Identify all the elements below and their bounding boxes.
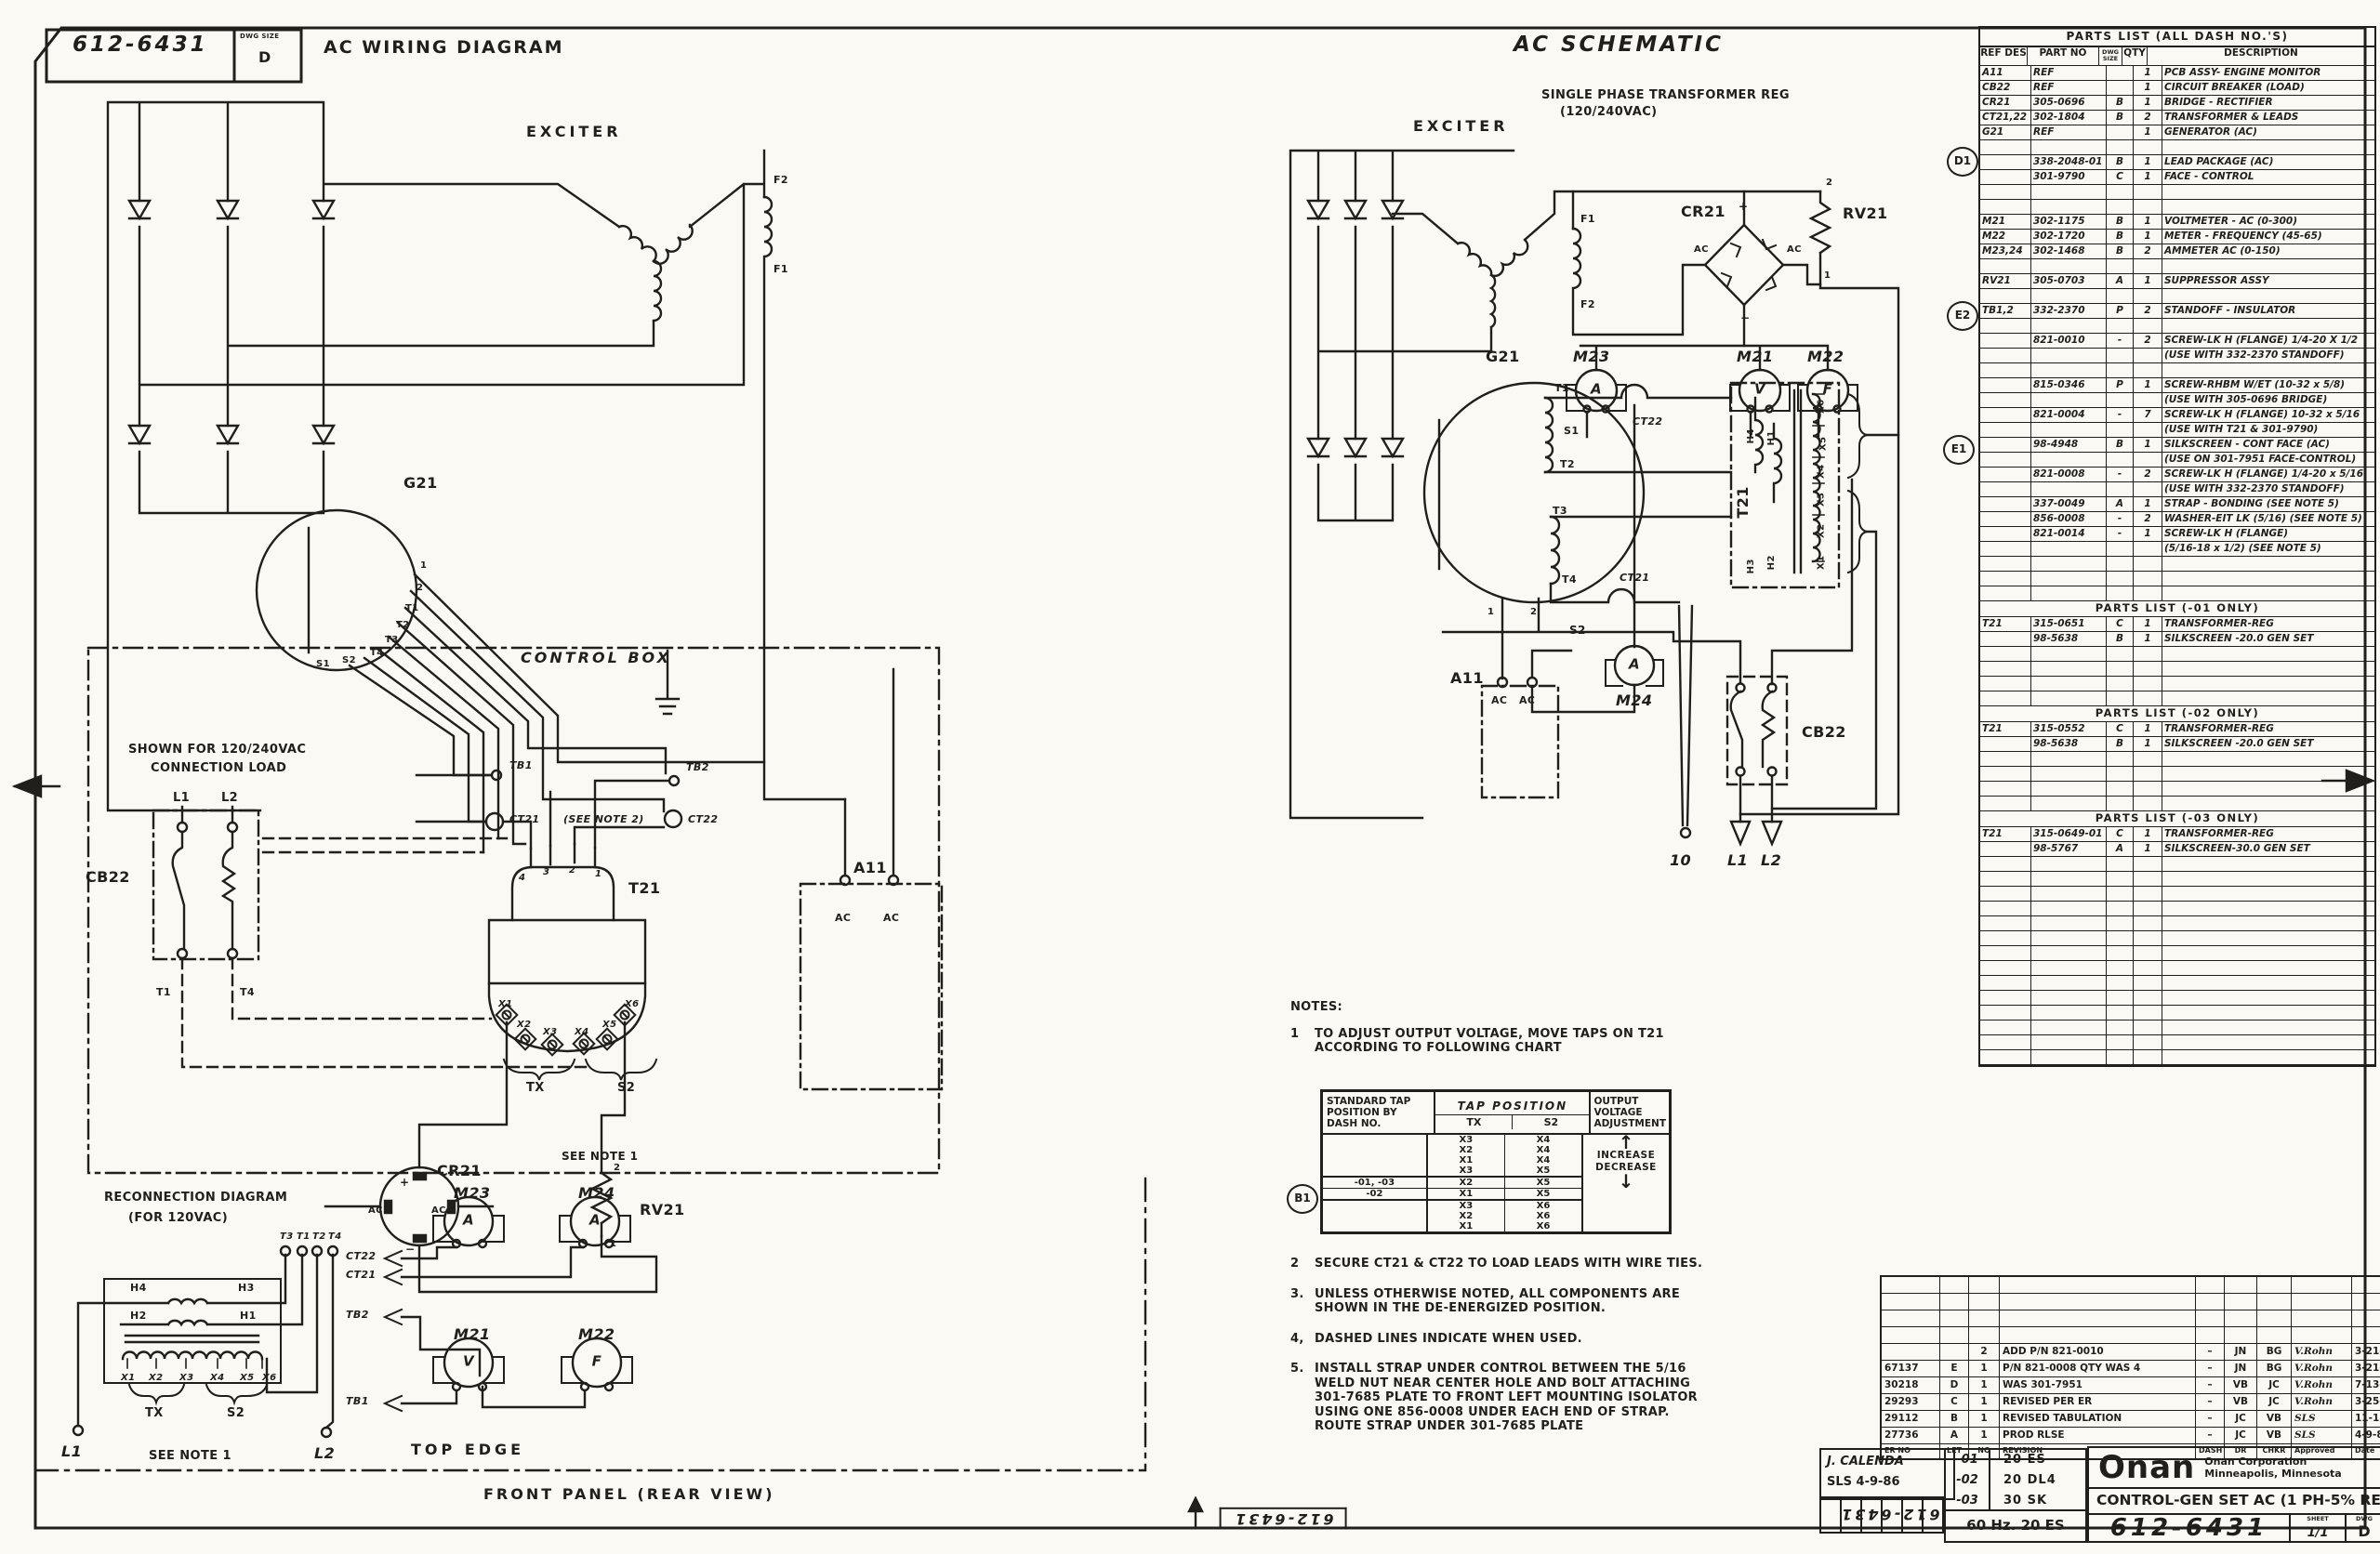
t21-pin4: 4 bbox=[519, 874, 525, 884]
t21-x2: X2 bbox=[517, 1021, 531, 1031]
schem-x1: X1 bbox=[1817, 556, 1827, 570]
parts-row: M22302-1720 B1 METER - FREQUENCY (45-65) bbox=[1980, 230, 2374, 244]
t21-pin1: 1 bbox=[595, 870, 602, 880]
wiring-f2-label: F2 bbox=[773, 175, 788, 186]
a11-ac2: AC bbox=[883, 913, 899, 924]
cr21-minus: − bbox=[405, 1244, 415, 1256]
t21-x3: X3 bbox=[543, 1028, 557, 1038]
schem-t21-label: T21 bbox=[1736, 486, 1752, 518]
cb22-l2-label: L2 bbox=[221, 792, 238, 805]
schem-m23-letter: A bbox=[1591, 382, 1602, 397]
parts-row bbox=[1980, 557, 2374, 572]
panel-ct22-flag: CT22 bbox=[346, 1251, 376, 1262]
chart-rows: X3 X4 X2 X4 X1 X4 X3 X5 -01, -03 X2 bbox=[1323, 1135, 1583, 1231]
t21-s2-label: S2 bbox=[617, 1082, 635, 1095]
dash-model-row: -01 20 ES bbox=[1946, 1450, 2085, 1470]
size-caption: DWG bbox=[2347, 1515, 2380, 1522]
panel-tb2-flag: TB2 bbox=[346, 1310, 369, 1321]
tap-position-chart: STANDARD TAP POSITION BY DASH NO. TAP PO… bbox=[1320, 1089, 1672, 1234]
parts-row: M21302-1175 B1 VOLTMETER - AC (0-300) bbox=[1980, 215, 2374, 230]
panel-m23-label: M23 bbox=[454, 1186, 490, 1202]
parts-row: 856-0008 -2 WASHER-EIT LK (5/16) (SEE NO… bbox=[1980, 512, 2374, 527]
g21-lead-s2: S2 bbox=[342, 656, 356, 666]
schem-lead-2: 2 bbox=[1530, 608, 1537, 618]
parts-row bbox=[1980, 961, 2374, 976]
revision-row bbox=[1882, 1310, 2380, 1327]
parts-row: 821-0010 -2 SCREW-LK H (FLANGE) 1/4-20 X… bbox=[1980, 334, 2374, 349]
revision-table: 2ADD P/N 821-0010 –JN BGV.Rohn 3-21-94 6… bbox=[1880, 1275, 2380, 1460]
revision-row bbox=[1882, 1327, 2380, 1344]
schem-m22-letter: F bbox=[1823, 382, 1833, 397]
parts-row: 337-0049 A1 STRAP - BONDING (SEE NOTE 5) bbox=[1980, 497, 2374, 512]
schem-cr21-label: CR21 bbox=[1681, 204, 1725, 220]
m21-meter-letter: V bbox=[463, 1354, 474, 1369]
parts-list-03-title: PARTS LIST (-03 ONLY) bbox=[1980, 811, 2374, 827]
parts-row: 821-0014 -1 SCREW-LK H (FLANGE) bbox=[1980, 527, 2374, 542]
chart-row: -02 X1 X5 bbox=[1323, 1188, 1581, 1201]
parts-row bbox=[1980, 976, 2374, 991]
front-panel-label: FRONT PANEL (REAR VIEW) bbox=[483, 1487, 775, 1503]
panel-m21-label: M21 bbox=[454, 1327, 490, 1343]
parts-row bbox=[1980, 200, 2374, 215]
g21-lead-2: 2 bbox=[416, 584, 423, 594]
parts-row: T21315-0649-01 C1 TRANSFORMER-REG bbox=[1980, 827, 2374, 842]
parts-row: CR21305-0696 B1 BRIDGE - RECTIFIER bbox=[1980, 96, 2374, 111]
dash-model-box: -01 20 ES -02 20 DL4 -03 30 SK bbox=[1944, 1448, 2087, 1511]
note-1-text: TO ADJUST OUTPUT VOLTAGE, MOVE TAPS ON T… bbox=[1315, 1027, 1686, 1055]
top-edge-label: TOP EDGE bbox=[411, 1442, 524, 1458]
cr21-plus: + bbox=[400, 1177, 409, 1189]
wiring-f1-label: F1 bbox=[773, 264, 788, 275]
recon-h2: H2 bbox=[130, 1310, 147, 1322]
chart-row: X2 X6 bbox=[1323, 1211, 1581, 1221]
dwg-number-topleft: 612-6431 bbox=[73, 33, 208, 56]
chart-tap-title: TAP POSITION bbox=[1435, 1092, 1589, 1115]
g21-lead-s1: S1 bbox=[316, 660, 330, 670]
schem-s2-label: S2 bbox=[1569, 625, 1586, 637]
parts-row: (USE WITH 305-0696 BRIDGE) bbox=[1980, 393, 2374, 408]
recon-t1: T1 bbox=[297, 1232, 311, 1243]
wiring-see-note1: SEE NOTE 1 bbox=[562, 1151, 638, 1163]
parts-row: M23,24302-1468 B2 AMMETER AC (0-150) bbox=[1980, 244, 2374, 259]
t21-pin3: 3 bbox=[543, 868, 549, 878]
chart-row: -01, -03 X2 X5 bbox=[1323, 1176, 1581, 1188]
wiring-rv21-label: RV21 bbox=[640, 1203, 685, 1218]
wiring-g21-label: G21 bbox=[403, 476, 438, 492]
chart-col-tx: TX bbox=[1435, 1115, 1513, 1129]
reconnection-title-2: (FOR 120VAC) bbox=[128, 1212, 228, 1225]
schem-ct22-label: CT22 bbox=[1633, 416, 1662, 428]
schem-bridge-ac-left: AC bbox=[1694, 245, 1709, 256]
parts-row bbox=[1980, 797, 2374, 811]
t21-x6: X6 bbox=[625, 1000, 639, 1010]
wiring-cb22-label: CB22 bbox=[86, 870, 130, 886]
note-item: 3. UNLESS OTHERWISE NOTED, ALL COMPONENT… bbox=[1290, 1287, 1727, 1316]
col-part-no: PART NO bbox=[2028, 47, 2099, 65]
parts-row: 98-5638 B1 SILKSCREEN -20.0 GEN SET bbox=[1980, 737, 2374, 752]
chart-row: X2 X4 bbox=[1323, 1145, 1581, 1155]
parts-row bbox=[1980, 586, 2374, 601]
control-box-label: CONTROL BOX bbox=[521, 651, 671, 666]
corp-line2: Minneapolis, Minnesota bbox=[2204, 1468, 2341, 1480]
parts-row: (USE WITH 332-2370 STANDOFF) bbox=[1980, 349, 2374, 363]
schem-f2: F2 bbox=[1580, 299, 1595, 310]
note-item: 2 SECURE CT21 & CT22 TO LOAD LEADS WITH … bbox=[1290, 1257, 1727, 1271]
parts-row: 821-0008 -2 SCREW-LK H (FLANGE) 1/4-20 x… bbox=[1980, 468, 2374, 482]
parts-row bbox=[1980, 677, 2374, 691]
parts-row bbox=[1980, 662, 2374, 677]
rv21-pin1: 1 bbox=[610, 1240, 616, 1250]
drafter-box: J. CALENDA SLS 4-9-86 bbox=[1819, 1448, 1955, 1500]
dash-model-row: -03 30 SK bbox=[1946, 1491, 2085, 1511]
recon-x6: X6 bbox=[262, 1374, 276, 1384]
panel-ct21-flag: CT21 bbox=[346, 1270, 376, 1281]
schem-m24-label: M24 bbox=[1616, 693, 1652, 709]
recon-x3: X3 bbox=[179, 1374, 193, 1384]
schem-t2: T2 bbox=[1560, 459, 1575, 470]
chart-output-header: OUTPUT VOLTAGE ADJUSTMENT bbox=[1591, 1092, 1669, 1133]
schem-x4: X4 bbox=[1817, 465, 1827, 479]
schem-x6: X6 bbox=[1817, 400, 1827, 414]
a11-ac1: AC bbox=[835, 913, 851, 924]
parts-row bbox=[1980, 872, 2374, 887]
tb2-label: TB2 bbox=[686, 762, 709, 773]
recon-x1: X1 bbox=[121, 1374, 135, 1384]
schem-h2: H2 bbox=[1767, 555, 1778, 570]
onan-logo: Onan bbox=[2089, 1452, 2204, 1483]
schem-a11-label: A11 bbox=[1450, 671, 1484, 687]
parts-row bbox=[1980, 916, 2374, 931]
parts-row: T21315-0552 C1 TRANSFORMER-REG bbox=[1980, 722, 2374, 737]
down-arrow-icon: ↓ bbox=[1583, 1174, 1669, 1189]
frequency-model: 60 Hz. 20 ES bbox=[1966, 1517, 2064, 1534]
tb1-label: TB1 bbox=[509, 760, 533, 771]
parts-row bbox=[1980, 259, 2374, 274]
drawing-title: CONTROL-GEN SET AC (1 PH-5% REG) bbox=[2089, 1489, 2380, 1515]
parts-row bbox=[1980, 691, 2374, 706]
schematic-subtitle-1: SINGLE PHASE TRANSFORMER REG bbox=[1541, 89, 1790, 102]
chart-dash-header: STANDARD TAP POSITION BY DASH NO. bbox=[1323, 1092, 1435, 1133]
revision-row bbox=[1882, 1277, 2380, 1294]
panel-tb1-flag: TB1 bbox=[346, 1396, 369, 1407]
parts-row bbox=[1980, 140, 2374, 155]
chart-row: X1 X6 bbox=[1323, 1221, 1581, 1231]
checker-sig: SLS 4-9-86 bbox=[1827, 1472, 1948, 1493]
cr21-ac-right: AC bbox=[431, 1206, 446, 1217]
parts-row bbox=[1980, 767, 2374, 782]
revision-row: 2ADD P/N 821-0010 –JN BGV.Rohn 3-21-94 bbox=[1882, 1344, 2380, 1361]
note-1-number: 1 bbox=[1290, 1027, 1315, 1055]
parts-row bbox=[1980, 946, 2374, 961]
schem-l2-label: L2 bbox=[1761, 853, 1781, 869]
schem-bridge-ac-right: AC bbox=[1787, 245, 1802, 256]
schem-cb22-label: CB22 bbox=[1802, 725, 1846, 741]
parts-row bbox=[1980, 887, 2374, 902]
schem-h4: H4 bbox=[1747, 428, 1757, 443]
parts-row: (5/16-18 x 1/2) (SEE NOTE 5) bbox=[1980, 542, 2374, 557]
schem-m21-letter: V bbox=[1754, 382, 1765, 397]
col-dwg-size: DWG SIZE bbox=[2099, 47, 2122, 65]
schem-m22-label: M22 bbox=[1807, 349, 1844, 365]
ct21-label: CT21 bbox=[509, 814, 539, 825]
wiring-exciter-label: EXCITER bbox=[526, 125, 622, 140]
drawing-sheet: 612-6431 DWG SIZE D AC WIRING DIAGRAM AC… bbox=[0, 0, 2380, 1554]
schematic-subtitle-2: (120/240VAC) bbox=[1560, 106, 1657, 119]
schem-t4: T4 bbox=[1562, 574, 1577, 586]
notes-heading: NOTES: bbox=[1290, 1000, 1718, 1014]
parts-row: 821-0004 -7 SCREW-LK H (FLANGE) 10-32 x … bbox=[1980, 408, 2374, 423]
recon-s2-label: S2 bbox=[227, 1407, 245, 1420]
recon-x4: X4 bbox=[210, 1374, 224, 1384]
note-1: 1 TO ADJUST OUTPUT VOLTAGE, MOVE TAPS ON… bbox=[1290, 1027, 1718, 1055]
wiring-a11-label: A11 bbox=[853, 861, 887, 876]
zone-ref-e2: E2 bbox=[1947, 301, 1978, 331]
recon-t3: T3 bbox=[280, 1232, 294, 1243]
chart-col-s2: S2 bbox=[1513, 1115, 1589, 1129]
recon-see-note1: SEE NOTE 1 bbox=[149, 1450, 231, 1463]
recon-l2-label: L2 bbox=[314, 1446, 335, 1462]
flipped-dwg-number-center: 612-6431 bbox=[1220, 1508, 1347, 1529]
parts-list-02-title: PARTS LIST (-02 ONLY) bbox=[1980, 706, 2374, 722]
revision-row bbox=[1882, 1294, 2380, 1310]
parts-row bbox=[1980, 1050, 2374, 1065]
schem-exciter-label: EXCITER bbox=[1413, 119, 1509, 135]
g21-lead-1: 1 bbox=[420, 561, 427, 572]
t21-pin2: 2 bbox=[569, 866, 575, 876]
drafter-name: J. CALENDA bbox=[1827, 1452, 1948, 1472]
parts-row: 338-2048-01 B1 LEAD PACKAGE (AC) bbox=[1980, 155, 2374, 170]
chart-row: X3 X4 bbox=[1323, 1135, 1581, 1145]
zone-ref-b1: B1 bbox=[1287, 1184, 1318, 1214]
schem-out10-label: 10 bbox=[1670, 853, 1691, 869]
note-item: 4, DASHED LINES INDICATE WHEN USED. bbox=[1290, 1332, 1727, 1347]
schem-m21-label: M21 bbox=[1737, 349, 1773, 365]
schem-g21-label: G21 bbox=[1486, 349, 1520, 365]
parts-row bbox=[1980, 931, 2374, 946]
ac-schematic-title: AC SCHEMATIC bbox=[1514, 33, 1724, 56]
parts-row bbox=[1980, 857, 2374, 872]
cb22-t1-label: T1 bbox=[156, 987, 171, 998]
schem-x3: X3 bbox=[1817, 493, 1827, 507]
note-item: 5. INSTALL STRAP UNDER CONTROL BETWEEN T… bbox=[1290, 1362, 1727, 1434]
parts-row: A11REF 1 PCB ASSY- ENGINE MONITOR bbox=[1980, 66, 2374, 81]
parts-row: 301-9790 C1 FACE - CONTROL bbox=[1980, 170, 2374, 185]
parts-row bbox=[1980, 289, 2374, 304]
parts-row: (USE WITH T21 & 301-9790) bbox=[1980, 423, 2374, 438]
panel-m22-label: M22 bbox=[578, 1327, 615, 1343]
t21-x5: X5 bbox=[602, 1021, 616, 1031]
t21-x4: X4 bbox=[575, 1028, 588, 1038]
parts-row bbox=[1980, 1006, 2374, 1021]
col-qty: QTY bbox=[2122, 47, 2148, 65]
col-description: DESCRIPTION bbox=[2148, 47, 2374, 65]
parts-row bbox=[1980, 185, 2374, 200]
corp-line1: Onan Corporation bbox=[2204, 1455, 2341, 1468]
chart-row: X3 X6 bbox=[1323, 1201, 1581, 1211]
revision-row: 29293C 1REVISED PER ER –VB JCV.Rohn 3-25… bbox=[1882, 1394, 2380, 1411]
dwg-size-caption: DWG SIZE bbox=[240, 33, 279, 40]
recon-h4: H4 bbox=[130, 1283, 147, 1294]
recon-h1: H1 bbox=[240, 1310, 257, 1322]
frequency-box: 60 Hz. 20 ES bbox=[1944, 1509, 2087, 1543]
schem-m23-label: M23 bbox=[1573, 349, 1609, 365]
zone-ref-d1: D1 bbox=[1947, 147, 1978, 177]
schem-f1: F1 bbox=[1580, 214, 1595, 225]
ct22-label: CT22 bbox=[688, 814, 718, 825]
g21-lead-t4: T4 bbox=[370, 649, 384, 659]
notes-2-to-5: 2 SECURE CT21 & CT22 TO LOAD LEADS WITH … bbox=[1290, 1257, 1727, 1450]
parts-row: G21REF 1 GENERATOR (AC) bbox=[1980, 125, 2374, 140]
see-note-2-label: (SEE NOTE 2) bbox=[563, 814, 644, 825]
revision-row: 67137E 1P/N 821-0008 QTY WAS 4 –JN BGV.R… bbox=[1882, 1361, 2380, 1377]
parts-list-header-row: REF DES PART NO DWG SIZE QTY DESCRIPTION bbox=[1980, 47, 2374, 66]
schem-x2: X2 bbox=[1817, 524, 1827, 538]
parts-row bbox=[1980, 647, 2374, 662]
parts-row: (USE WITH 332-2370 STANDOFF) bbox=[1980, 482, 2374, 497]
onan-title-block: Onan Onan Corporation Minneapolis, Minne… bbox=[2087, 1446, 2380, 1543]
cr21-ac-left: AC bbox=[368, 1206, 383, 1217]
m22-meter-letter: F bbox=[592, 1354, 602, 1369]
parts-row: 98-4948 B1 SILKSCREEN - CONT FACE (AC) bbox=[1980, 438, 2374, 453]
parts-row bbox=[1980, 572, 2374, 586]
revision-row: 29112B 1REVISED TABULATION –JC VBSLS 11-… bbox=[1882, 1411, 2380, 1428]
recon-l1-label: L1 bbox=[61, 1444, 82, 1460]
chart-tap-header: TAP POSITION TX S2 bbox=[1435, 1092, 1591, 1133]
parts-list-01-title: PARTS LIST (-01 ONLY) bbox=[1980, 601, 2374, 617]
parts-row bbox=[1980, 991, 2374, 1006]
schem-t1: T1 bbox=[1554, 383, 1569, 394]
schem-h3: H3 bbox=[1747, 559, 1757, 573]
parts-row: (USE ON 301-7951 FACE-CONTROL) bbox=[1980, 453, 2374, 468]
zone-ref-e1: E1 bbox=[1943, 435, 1975, 465]
schem-h1: H1 bbox=[1767, 430, 1778, 445]
notes-section: NOTES: 1 TO ADJUST OUTPUT VOLTAGE, MOVE … bbox=[1290, 1000, 1718, 1071]
parts-list-all-title: PARTS LIST (ALL DASH NO.'S) bbox=[1980, 28, 2374, 47]
up-arrow-icon: ↑ bbox=[1583, 1135, 1669, 1150]
parts-row bbox=[1980, 363, 2374, 378]
g21-lead-t3: T3 bbox=[385, 636, 399, 646]
t21-x1: X1 bbox=[498, 1000, 512, 1010]
wiring-diagram-title: AC WIRING DIAGRAM bbox=[324, 39, 563, 58]
col-ref-des: REF DES bbox=[1980, 47, 2028, 65]
schem-bridge-plus: + bbox=[1739, 201, 1748, 213]
rv21-pin2: 2 bbox=[614, 1164, 620, 1174]
drawing-number: 612-6431 bbox=[2089, 1515, 2291, 1543]
schem-rv21-1: 1 bbox=[1824, 271, 1831, 282]
wiring-t21-label: T21 bbox=[628, 881, 660, 897]
sheet-number: 1/1 bbox=[2307, 1526, 2329, 1540]
parts-row bbox=[1980, 752, 2374, 767]
schem-t3: T3 bbox=[1553, 506, 1567, 517]
schem-rv21-2: 2 bbox=[1826, 178, 1832, 189]
flipped-dwg-number-right: 612-6431 bbox=[1839, 1506, 1940, 1521]
schem-bridge-minus: − bbox=[1740, 312, 1750, 324]
recon-x5: X5 bbox=[240, 1374, 254, 1384]
parts-row: T21315-0651 C1 TRANSFORMER-REG bbox=[1980, 617, 2374, 632]
revision-row: 30218D 1WAS 301-7951 –VB JCV.Rohn 7-13-8… bbox=[1882, 1377, 2380, 1394]
parts-row bbox=[1980, 1035, 2374, 1050]
recon-h3: H3 bbox=[238, 1283, 255, 1294]
recon-t2: T2 bbox=[312, 1232, 326, 1243]
parts-list-panel: PARTS LIST (ALL DASH NO.'S) REF DES PART… bbox=[1978, 26, 2376, 1067]
parts-row bbox=[1980, 902, 2374, 916]
recon-x2: X2 bbox=[149, 1374, 163, 1384]
t21-tx-label: TX bbox=[526, 1082, 545, 1095]
parts-row: 98-5767 A1 SILKSCREEN-30.0 GEN SET bbox=[1980, 842, 2374, 857]
reconnection-title-1: RECONNECTION DIAGRAM bbox=[104, 1192, 287, 1205]
recon-tx-label: TX bbox=[145, 1407, 164, 1420]
m24-meter-letter: A bbox=[589, 1213, 601, 1228]
m23-meter-letter: A bbox=[463, 1213, 474, 1228]
parts-row bbox=[1980, 782, 2374, 797]
schem-l1-label: L1 bbox=[1727, 853, 1748, 869]
recon-t4: T4 bbox=[328, 1232, 342, 1243]
chart-adjustment-column: ↑ INCREASE DECREASE ↓ bbox=[1583, 1135, 1669, 1231]
schem-a11-ac1: AC bbox=[1491, 695, 1507, 706]
dash-model-row: -02 20 DL4 bbox=[1946, 1470, 2085, 1491]
schem-lead-1: 1 bbox=[1487, 608, 1494, 618]
sheet-caption: SHEET bbox=[2291, 1515, 2345, 1522]
revision-row: 27736A 1PROD RLSE –JC VBSLS 4-9-86 bbox=[1882, 1428, 2380, 1444]
schem-s1: S1 bbox=[1564, 426, 1579, 437]
schem-a11-ac2: AC bbox=[1519, 695, 1535, 706]
size-value: D bbox=[2358, 1522, 2370, 1540]
parts-row bbox=[1980, 319, 2374, 334]
parts-row: 98-5638 B1 SILKSCREEN -20.0 GEN SET bbox=[1980, 632, 2374, 647]
chart-row: X1 X4 bbox=[1323, 1155, 1581, 1165]
cb22-l1-label: L1 bbox=[173, 792, 190, 805]
schem-x5: X5 bbox=[1818, 437, 1829, 451]
parts-row: CT21,22302-1804 B2 TRANSFORMER & LEADS bbox=[1980, 111, 2374, 125]
parts-row: 815-0346 P1 SCREW-RHBM W/ET (10-32 x 5/8… bbox=[1980, 378, 2374, 393]
shown-for-line1: SHOWN FOR 120/240VAC bbox=[128, 744, 306, 757]
wiring-cr21-label: CR21 bbox=[437, 1164, 482, 1179]
schem-m24-letter: A bbox=[1629, 657, 1640, 672]
chart-row: X3 X5 bbox=[1323, 1165, 1581, 1176]
schem-ct21-label: CT21 bbox=[1620, 573, 1649, 584]
g21-lead-t1: T1 bbox=[405, 604, 419, 614]
parts-row: RV21305-0703 A1 SUPPRESSOR ASSY bbox=[1980, 274, 2374, 289]
parts-row bbox=[1980, 1021, 2374, 1035]
dwg-size-value: D bbox=[258, 50, 271, 66]
parts-row: CB22REF 1 CIRCUIT BREAKER (LOAD) bbox=[1980, 81, 2374, 96]
g21-lead-t2: T2 bbox=[396, 621, 410, 631]
chart-increase-label: INCREASE bbox=[1583, 1150, 1669, 1162]
shown-for-line2: CONNECTION LOAD bbox=[151, 762, 286, 775]
cb22-t4-label: T4 bbox=[240, 987, 255, 998]
panel-m24-label: M24 bbox=[578, 1186, 615, 1202]
parts-row: TB1,2332-2370 P2 STANDOFF - INSULATOR bbox=[1980, 304, 2374, 319]
schem-rv21-label: RV21 bbox=[1843, 206, 1888, 222]
